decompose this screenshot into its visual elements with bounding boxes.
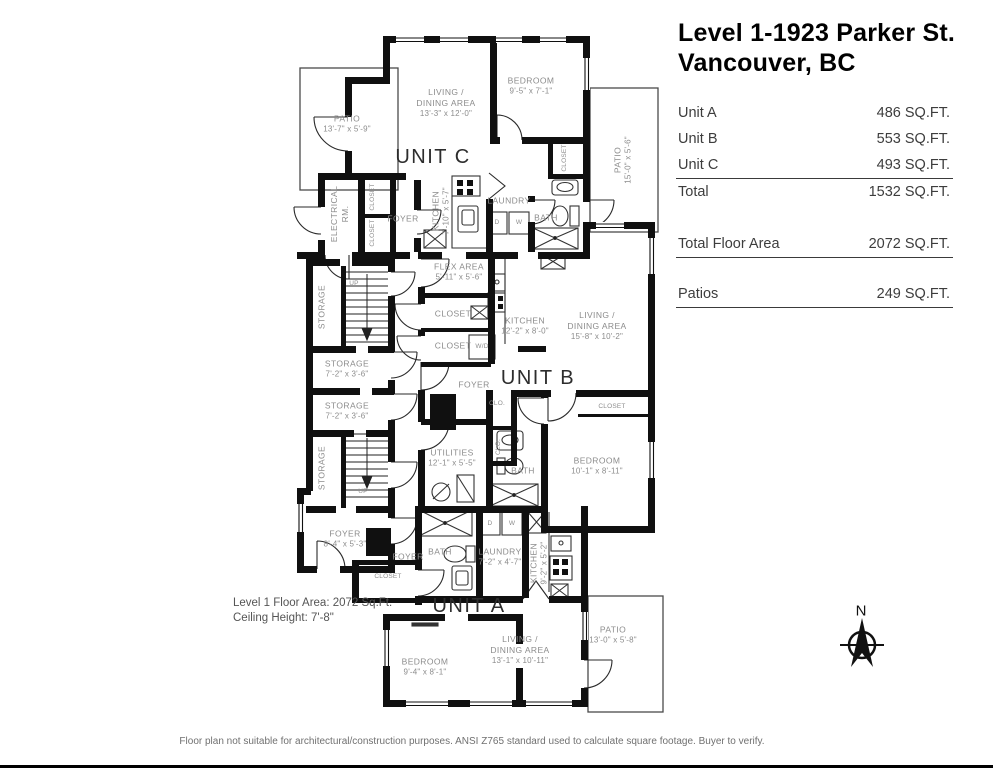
row-value: 486 SQ.FT. bbox=[877, 105, 950, 121]
row-label: Patios bbox=[678, 286, 718, 302]
stove-burners-a bbox=[553, 559, 568, 575]
unit-b-label: UNIT B bbox=[501, 365, 575, 391]
title-line-2: Vancouver, BC bbox=[678, 48, 955, 78]
closet-label: CLOSET bbox=[374, 573, 401, 581]
table-divider bbox=[676, 307, 953, 308]
row-label: Total bbox=[678, 184, 709, 200]
table-row-total: Total1532 SQ.FT. bbox=[678, 184, 950, 200]
room-label-kitchen-a: KITCHEN9'-2" x 5'-2" bbox=[528, 542, 549, 585]
north-label: N bbox=[856, 603, 867, 620]
table-divider bbox=[676, 178, 953, 179]
room-label-patio-right: PATIO15'-0" x 5'-6" bbox=[612, 136, 633, 184]
row-value: 553 SQ.FT. bbox=[877, 131, 950, 147]
washer-dryer-label: W/D bbox=[475, 343, 488, 351]
bath-c-label: BATH bbox=[534, 212, 558, 223]
stove-burners-c bbox=[457, 180, 473, 195]
room-label-living-a: LIVING /DINING AREA13'-1" x 10'-11" bbox=[490, 634, 549, 666]
up-label: UP bbox=[349, 280, 358, 288]
floor-plan-page: PATIO13'-7" x 5'-9" LIVING /DINING AREA1… bbox=[0, 0, 993, 768]
room-label-storage-2: STORAGE7'-2" x 3'-6" bbox=[325, 400, 369, 421]
room-label-utilities: UTILITIES12'-1" x 5'-5" bbox=[428, 447, 476, 468]
foyer-a-label: FOYER bbox=[392, 551, 423, 562]
room-label-laundry-a: LAUNDRY7'-2" x 4'-7" bbox=[478, 546, 521, 567]
row-value: 249 SQ.FT. bbox=[877, 286, 950, 302]
room-label-foyer-main: FOYER8'-4" x 5'-3" bbox=[324, 528, 367, 549]
bath-b-label: BATH bbox=[511, 465, 535, 476]
room-label-storage-1: STORAGE7'-2" x 3'-6" bbox=[325, 358, 369, 379]
closet-label: CLOSET bbox=[561, 144, 569, 171]
room-label-bedroom-b: BEDROOM10'-1" x 8'-11" bbox=[571, 455, 623, 476]
table-row-total-floor-area: Total Floor Area2072 SQ.FT. bbox=[678, 236, 950, 252]
room-label-kitchen-c: KITCHEN7'-10" x 5'-7" bbox=[430, 187, 451, 235]
row-value: 2072 SQ.FT. bbox=[869, 236, 950, 252]
room-label-living-c: LIVING /DINING AREA13'-3" x 12'-0" bbox=[416, 87, 475, 119]
closet-label: CLOSET bbox=[369, 183, 377, 210]
disclaimer-text: Floor plan not suitable for architectura… bbox=[172, 736, 772, 747]
ceiling-height-text: Ceiling Height: 7'-8" bbox=[233, 611, 392, 626]
unit-a-label: UNIT A bbox=[432, 593, 505, 619]
row-label: Unit C bbox=[678, 157, 718, 173]
closet-label: CLOSET bbox=[435, 308, 471, 319]
stairs bbox=[346, 272, 388, 497]
room-label-flex: FLEX AREA5'-11" x 5'-6" bbox=[434, 261, 484, 282]
table-divider bbox=[676, 257, 953, 258]
storage-label: STORAGE bbox=[316, 285, 327, 329]
foyer-b-label: FOYER bbox=[458, 379, 489, 390]
clo-label: CLO. bbox=[495, 439, 503, 455]
floor-area-note: Level 1 Floor Area: 2072 Sq.Ft. Ceiling … bbox=[233, 596, 392, 626]
row-label: Unit B bbox=[678, 131, 718, 147]
room-label-bedroom-c: BEDROOM9'-5" x 7'-1" bbox=[508, 75, 555, 96]
room-label-bedroom-a: BEDROOM9'-4" x 8'-1" bbox=[402, 656, 449, 677]
table-row-patios: Patios249 SQ.FT. bbox=[678, 286, 950, 302]
laundry-c-label: LAUNDRY bbox=[487, 195, 530, 206]
dryer-label: D bbox=[495, 219, 500, 227]
closet-label: CLOSET bbox=[369, 219, 377, 246]
row-value: 493 SQ.FT. bbox=[877, 157, 950, 173]
room-label-kitchen-b: KITCHEN12'-2" x 8'-0" bbox=[501, 315, 549, 336]
storage-label: STORAGE bbox=[316, 446, 327, 490]
table-row-unit-b: Unit B553 SQ.FT. bbox=[678, 131, 950, 147]
washer-label: W bbox=[516, 219, 522, 227]
row-label: Unit A bbox=[678, 105, 717, 121]
clo-label: CLO. bbox=[489, 400, 505, 408]
foyer-c-label: FOYER bbox=[387, 213, 418, 224]
closet-label: CLOSET bbox=[435, 340, 471, 351]
closet-label: CLOSET bbox=[598, 403, 625, 411]
bath-a-label: BATH bbox=[428, 546, 452, 557]
unit-c-label: UNIT C bbox=[395, 144, 470, 170]
north-compass-icon bbox=[840, 618, 884, 667]
floor-area-text: Level 1 Floor Area: 2072 Sq.Ft. bbox=[233, 596, 392, 611]
room-label-patio-a: PATIO13'-0" x 5'-8" bbox=[589, 624, 637, 645]
row-label: Total Floor Area bbox=[678, 236, 780, 252]
dryer-label: D bbox=[488, 520, 493, 528]
room-label-living-b: LIVING /DINING AREA15'-8" x 10'-2" bbox=[567, 310, 626, 342]
room-label-electrical: ELECTRICALRM. bbox=[329, 186, 351, 242]
up-label: UP bbox=[358, 488, 367, 496]
page-title: Level 1-1923 Parker St. Vancouver, BC bbox=[678, 18, 955, 78]
table-row-unit-c: Unit C493 SQ.FT. bbox=[678, 157, 950, 173]
title-line-1: Level 1-1923 Parker St. bbox=[678, 18, 955, 48]
row-value: 1532 SQ.FT. bbox=[869, 184, 950, 200]
room-label-patio-c: PATIO13'-7" x 5'-9" bbox=[323, 113, 371, 134]
table-row-unit-a: Unit A486 SQ.FT. bbox=[678, 105, 950, 121]
washer-label: W bbox=[509, 520, 515, 528]
